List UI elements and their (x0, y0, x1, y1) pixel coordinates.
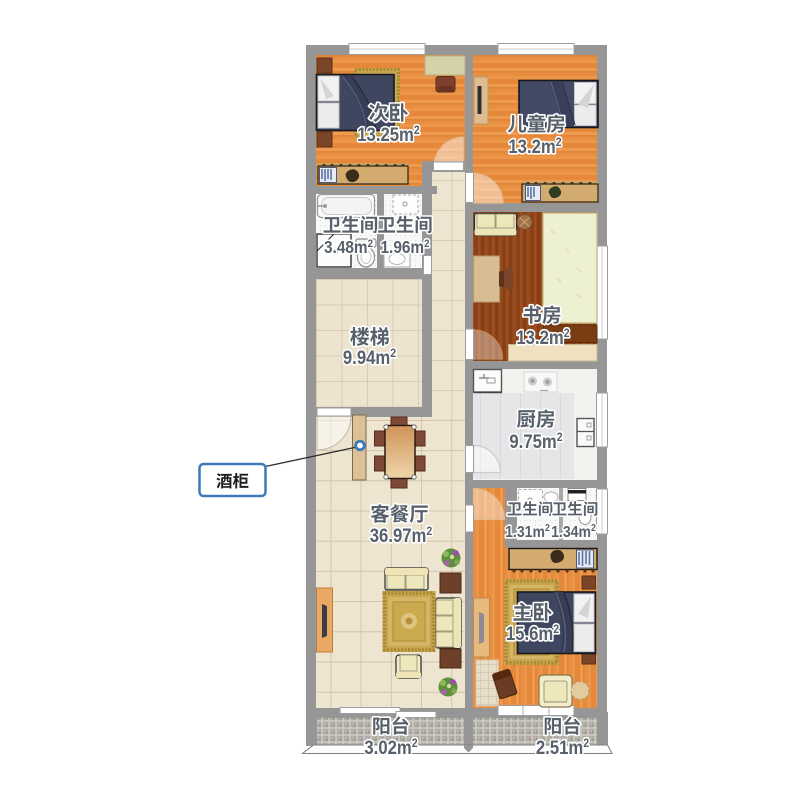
svg-text:13.25m2: 13.25m2 (357, 124, 420, 145)
svg-text:15.6m2: 15.6m2 (506, 623, 559, 644)
svg-text:1.34m2: 1.34m2 (551, 521, 596, 541)
svg-text:36.97m2: 36.97m2 (370, 525, 433, 546)
svg-text:13.2m2: 13.2m2 (516, 327, 569, 348)
svg-text:1.96m2: 1.96m2 (380, 238, 429, 257)
svg-text:9.94m2: 9.94m2 (343, 347, 396, 368)
svg-text:3.48m2: 3.48m2 (324, 238, 373, 257)
svg-text:13.2m2: 13.2m2 (508, 136, 561, 157)
svg-text:9.75m2: 9.75m2 (509, 431, 562, 452)
svg-text:2.51m2: 2.51m2 (536, 737, 589, 758)
svg-text:1.31m2: 1.31m2 (505, 521, 550, 541)
svg-text:3.02m2: 3.02m2 (364, 737, 417, 758)
